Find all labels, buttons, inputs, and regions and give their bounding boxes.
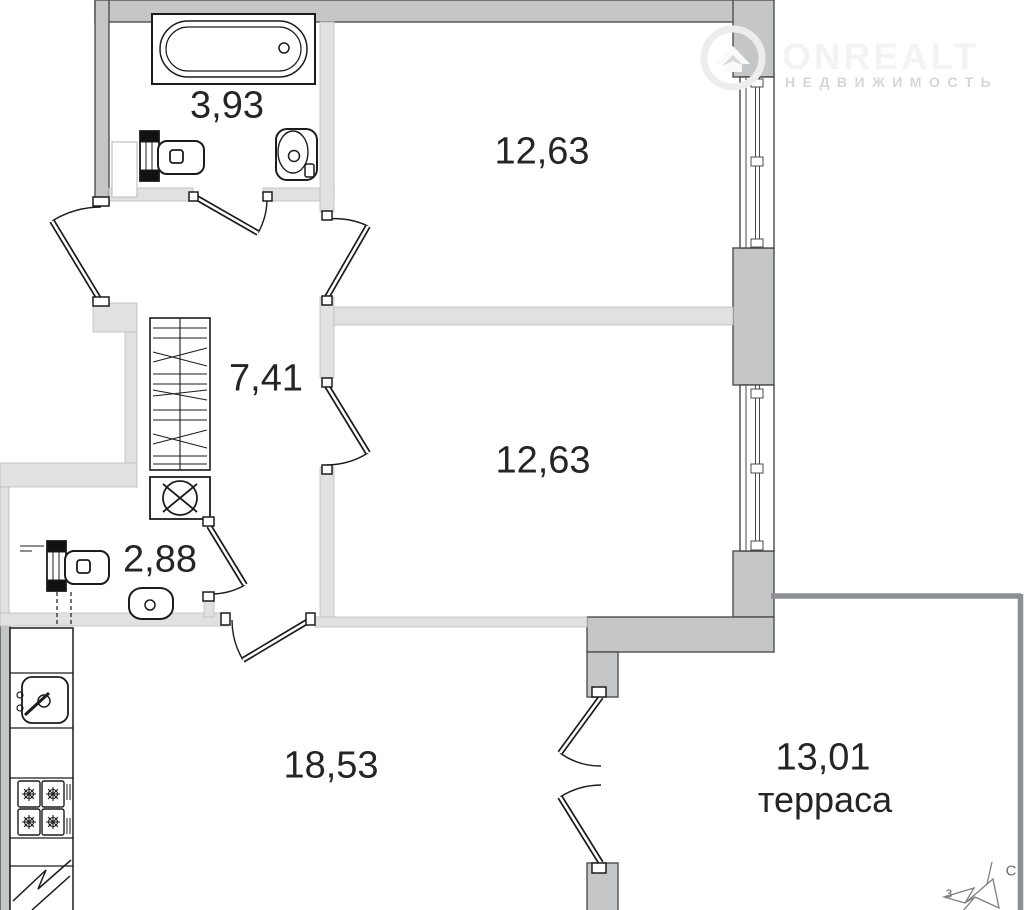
kitchen-door	[221, 613, 315, 660]
room-area-label-terrace: 13,01	[775, 737, 870, 780]
room-area-label-room-1: 12,63	[494, 131, 589, 174]
room-2-door	[322, 378, 368, 474]
bathroom-door	[189, 192, 272, 233]
window-1	[740, 77, 774, 248]
entrance-door	[52, 197, 109, 306]
room-name-label-terrace: терраса	[758, 779, 892, 821]
interior-walls	[0, 22, 733, 627]
compass-west-label: з	[946, 885, 953, 902]
wc-door	[203, 517, 245, 601]
bathroom-niche	[112, 142, 137, 197]
room-area-label-hallway: 7,41	[229, 358, 303, 401]
window-2	[740, 385, 774, 551]
terrace-door	[560, 687, 606, 873]
room-area-label-kitchen: 18,53	[283, 745, 378, 788]
ventilation-shaft-icon	[150, 477, 210, 519]
wc-sink-icon	[129, 588, 173, 619]
room-area-label-bathroom: 3,93	[190, 85, 264, 128]
compass-north-label: С	[1006, 863, 1017, 880]
kitchen-counter-icon	[10, 628, 73, 910]
bathtub-icon	[152, 14, 315, 84]
floor-plan: ONREALT НЕДВИЖИМОСТЬ 3,93 12,63 7,41 12,…	[0, 0, 1027, 910]
wardrobe-hatch-icon	[150, 318, 210, 470]
exterior-walls	[0, 0, 774, 910]
bathroom-toilet-icon	[140, 131, 204, 181]
bathroom-sink-icon	[276, 129, 317, 180]
wc-toilet-icon	[20, 541, 109, 624]
room-1-door	[322, 211, 368, 305]
room-area-label-room-2: 12,63	[495, 440, 590, 483]
room-area-label-wc: 2,88	[123, 539, 197, 582]
